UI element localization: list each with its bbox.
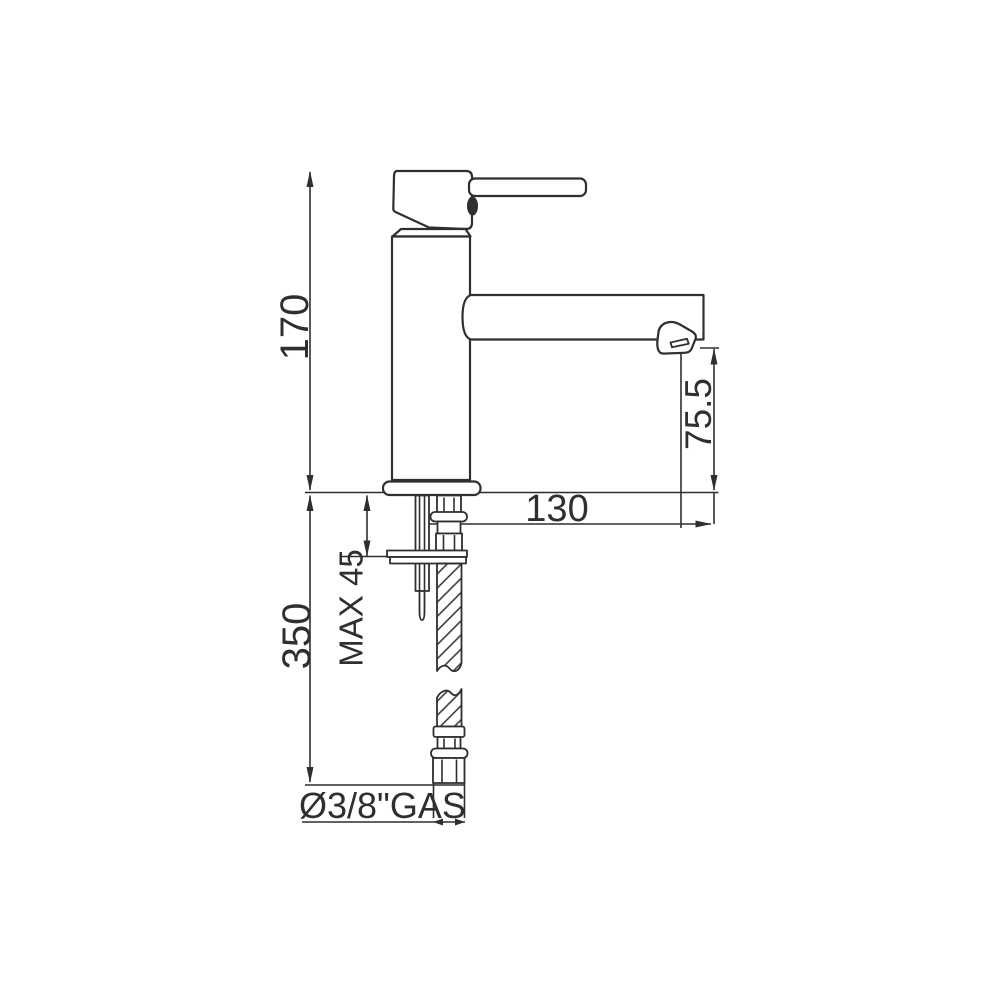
dim-label-hose-length: 350 — [275, 603, 319, 670]
handle-pivot-dot — [467, 197, 478, 216]
mounting-washer — [387, 551, 467, 564]
faucet-cartridge-head — [393, 171, 472, 229]
faucet-handle-lever — [469, 179, 586, 197]
dim-label-spout-reach: 130 — [525, 488, 588, 530]
pop-up-rod-tube — [416, 496, 430, 592]
supply-hose-lower — [437, 689, 462, 727]
dimension-labels: 170 350 MAX 45 130 75.5 Ø3/8"GAS — [273, 294, 719, 826]
dim-label-max-deck-thickness: MAX 45 — [333, 549, 370, 666]
mounting-shank — [431, 496, 468, 551]
pop-up-rod-tip — [420, 591, 425, 620]
hose-neck — [438, 737, 461, 749]
dimension-lines — [302, 171, 719, 826]
below-deck-hardware — [387, 496, 468, 819]
technical-drawing: 170 350 MAX 45 130 75.5 Ø3/8"GAS — [0, 0, 1000, 1000]
dim-max-deck-thickness — [340, 495, 389, 557]
faucet-neck — [393, 229, 471, 237]
dim-label-overall-height: 170 — [273, 294, 317, 361]
base-flange — [383, 482, 481, 496]
faucet-above-deck — [383, 171, 704, 495]
supply-hose-upper — [437, 564, 462, 672]
hex-connector — [433, 758, 465, 783]
dim-label-spout-outlet-height: 75.5 — [678, 378, 719, 450]
connection-thread-label: Ø3/8"GAS — [299, 785, 466, 826]
drawing-canvas: 170 350 MAX 45 130 75.5 Ø3/8"GAS — [0, 0, 1000, 1000]
hose-collar — [431, 749, 468, 759]
faucet-body — [392, 237, 470, 481]
hose-ferrule — [434, 727, 465, 738]
